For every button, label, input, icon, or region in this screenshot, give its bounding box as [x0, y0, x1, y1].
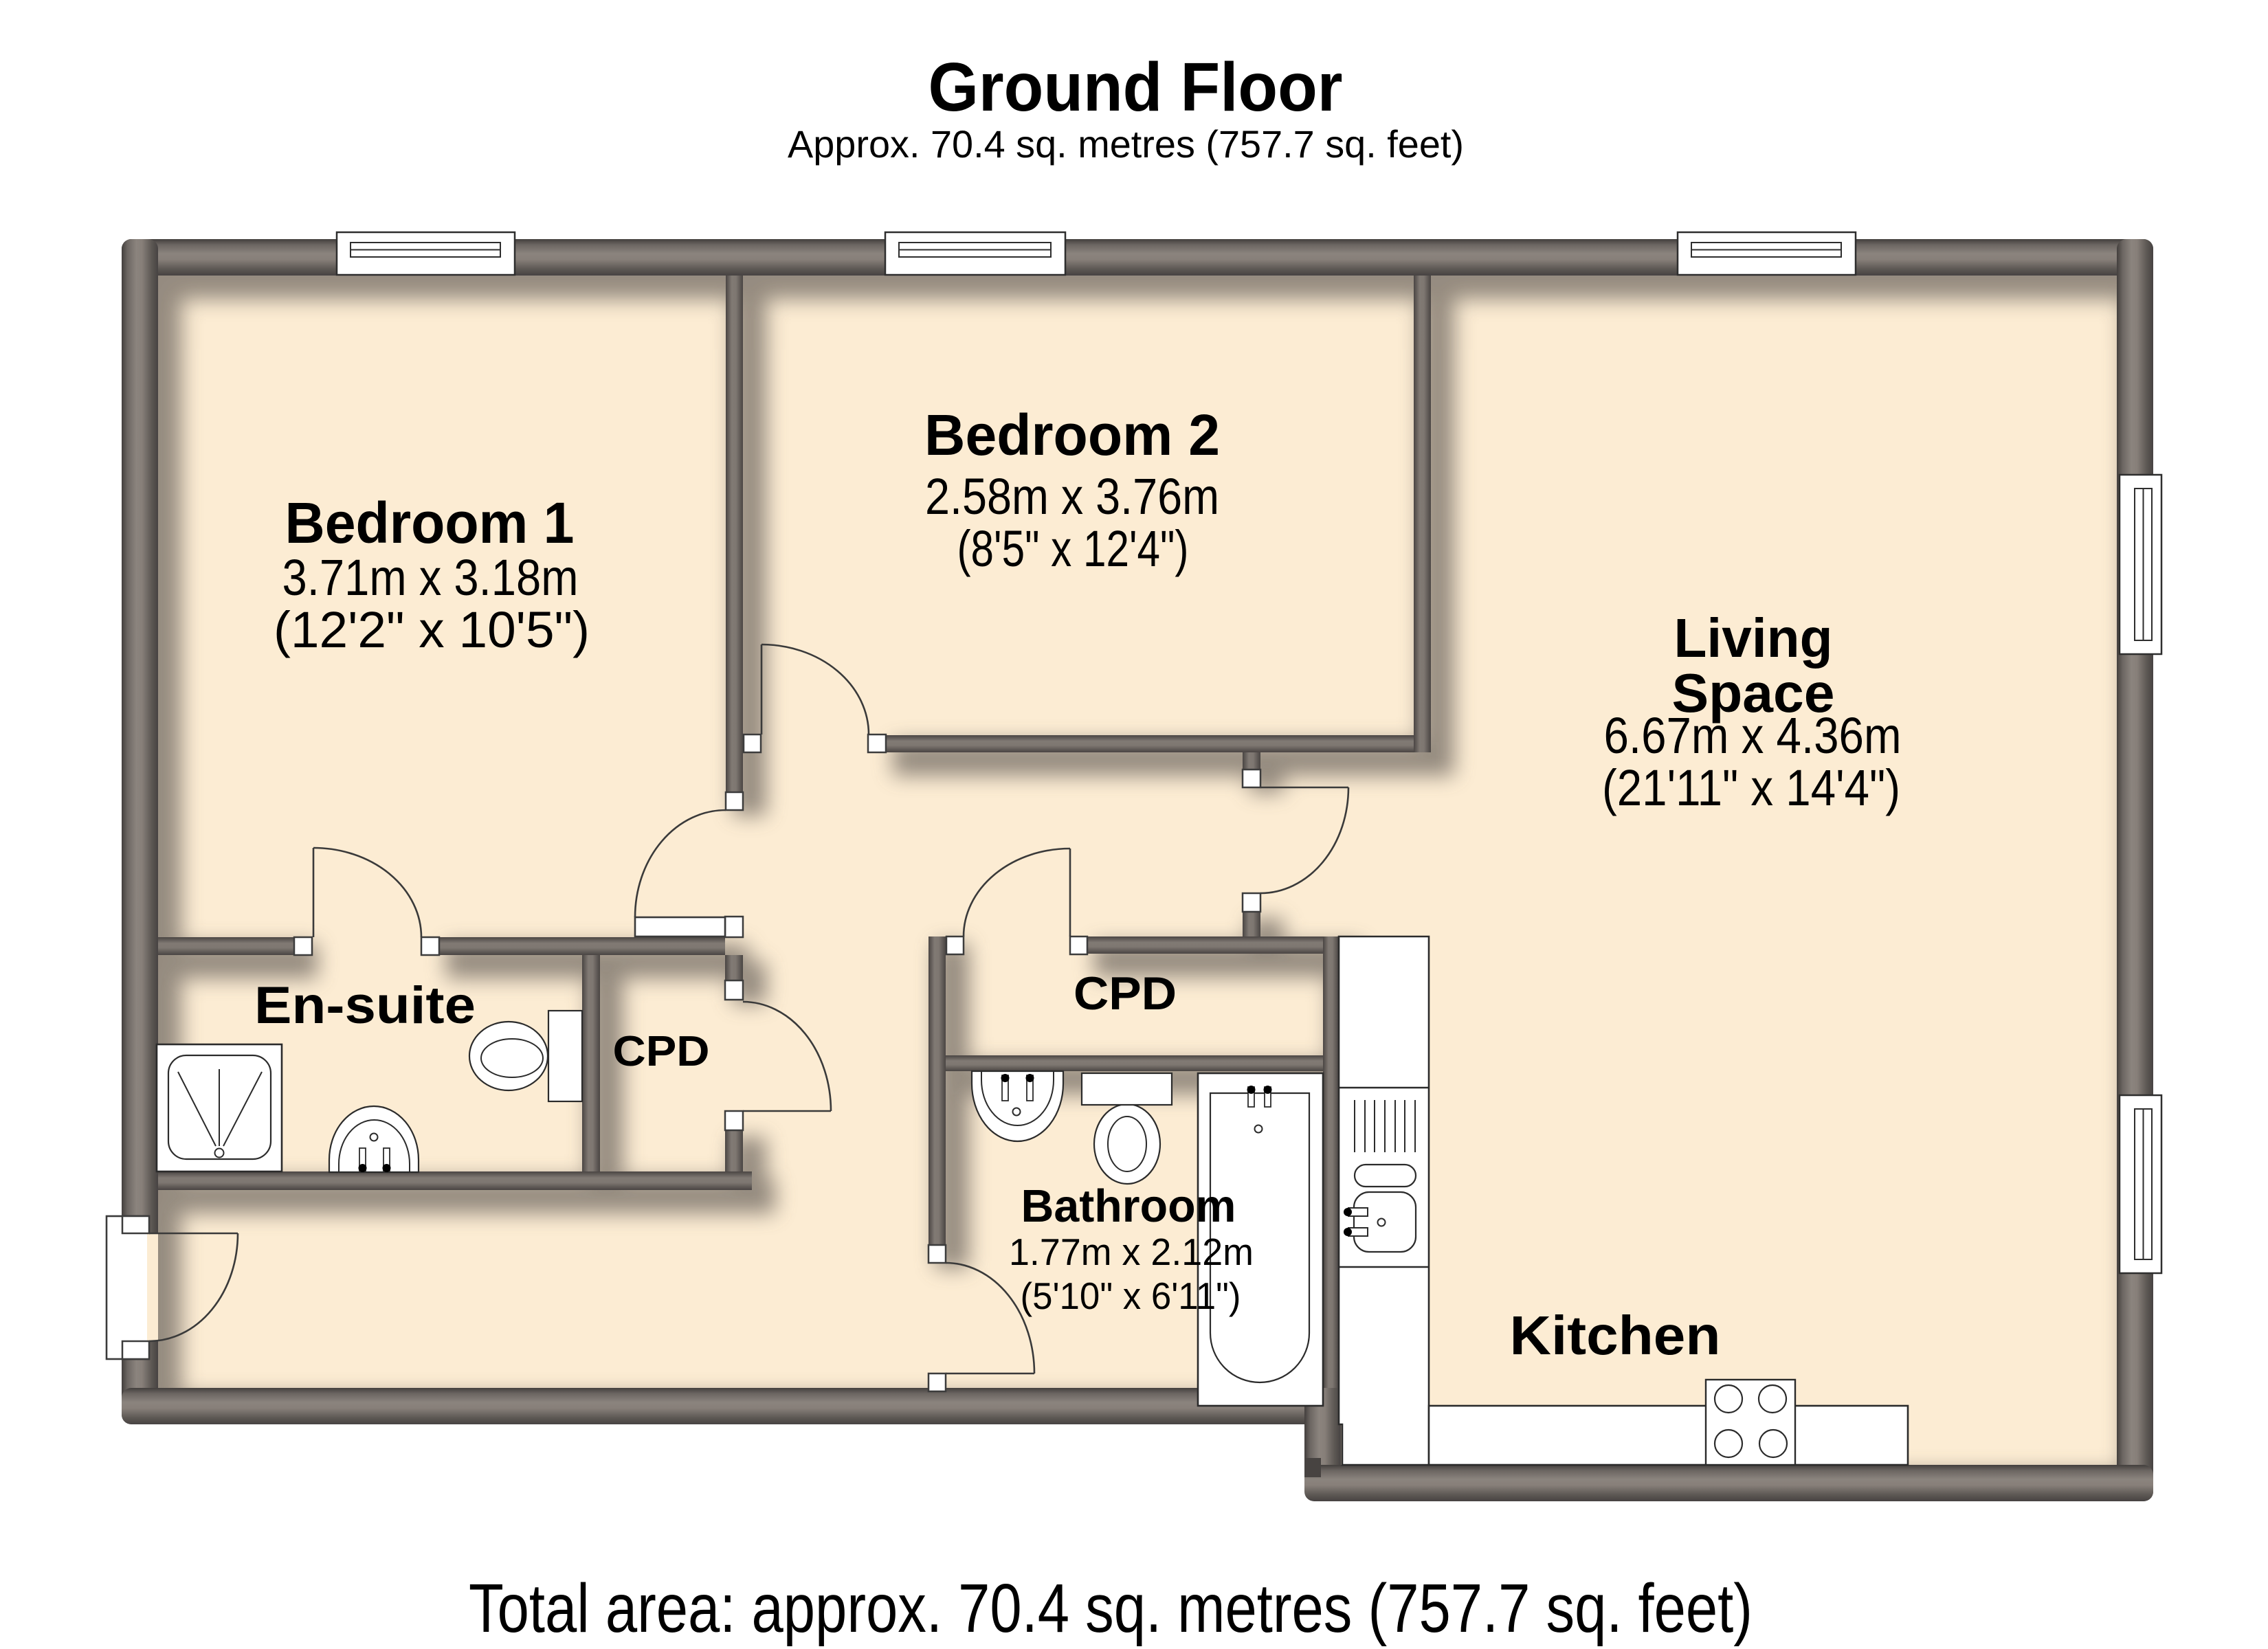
svg-text:1.77m x 2.12m: 1.77m x 2.12m — [1009, 1231, 1254, 1273]
svg-text:3.71m x 3.18m: 3.71m x 3.18m — [282, 549, 579, 606]
svg-text:(5'10" x 6'11"): (5'10" x 6'11") — [1021, 1275, 1241, 1317]
svg-text:Bedroom 2: Bedroom 2 — [924, 403, 1220, 467]
svg-text:Approx. 70.4 sq. metres (757.7: Approx. 70.4 sq. metres (757.7 sq. feet) — [788, 122, 1464, 166]
svg-text:(21'11" x 14'4"): (21'11" x 14'4") — [1602, 759, 1900, 816]
svg-text:(12'2" x 10'5"): (12'2" x 10'5") — [274, 601, 590, 658]
svg-text:Total area: approx. 70.4 sq. m: Total area: approx. 70.4 sq. metres (757… — [469, 1570, 1753, 1647]
svg-text:Kitchen: Kitchen — [1510, 1305, 1721, 1366]
svg-text:Bathroom: Bathroom — [1021, 1180, 1236, 1232]
svg-text:CPD: CPD — [1074, 967, 1177, 1020]
svg-text:6.67m x 4.36m: 6.67m x 4.36m — [1604, 707, 1902, 764]
svg-text:Living: Living — [1674, 607, 1833, 669]
svg-text:(8'5" x 12'4"): (8'5" x 12'4") — [957, 520, 1189, 577]
svg-text:CPD: CPD — [613, 1028, 710, 1075]
svg-text:Bedroom 1: Bedroom 1 — [285, 491, 575, 555]
svg-text:Ground Floor: Ground Floor — [929, 49, 1343, 126]
svg-text:En-suite: En-suite — [254, 976, 476, 1035]
svg-text:2.58m x 3.76m: 2.58m x 3.76m — [925, 468, 1219, 525]
